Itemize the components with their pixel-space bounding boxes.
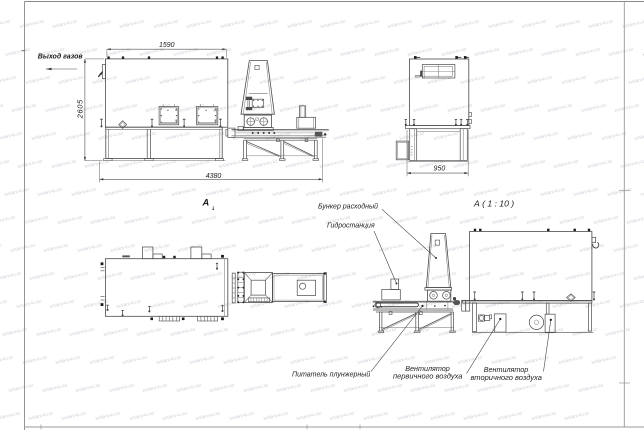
svg-text:А ( 1 : 10 ): А ( 1 : 10 ) bbox=[473, 198, 514, 208]
svg-text:Питатель плунжерный: Питатель плунжерный bbox=[292, 370, 370, 378]
svg-text:950: 950 bbox=[434, 166, 446, 173]
svg-text:Гидростанция: Гидростанция bbox=[327, 222, 375, 230]
svg-text:Бункер расходный: Бункер расходный bbox=[318, 202, 378, 210]
svg-text:первичного воздуха: первичного воздуха bbox=[393, 372, 463, 381]
svg-text:Выход газов: Выход газов bbox=[38, 53, 84, 61]
svg-text:4380: 4380 bbox=[206, 173, 222, 180]
svg-text:вторичного воздуха: вторичного воздуха bbox=[470, 373, 541, 382]
svg-text:А: А bbox=[202, 197, 210, 207]
svg-text:1590: 1590 bbox=[159, 42, 175, 49]
svg-text:2605: 2605 bbox=[75, 99, 84, 119]
